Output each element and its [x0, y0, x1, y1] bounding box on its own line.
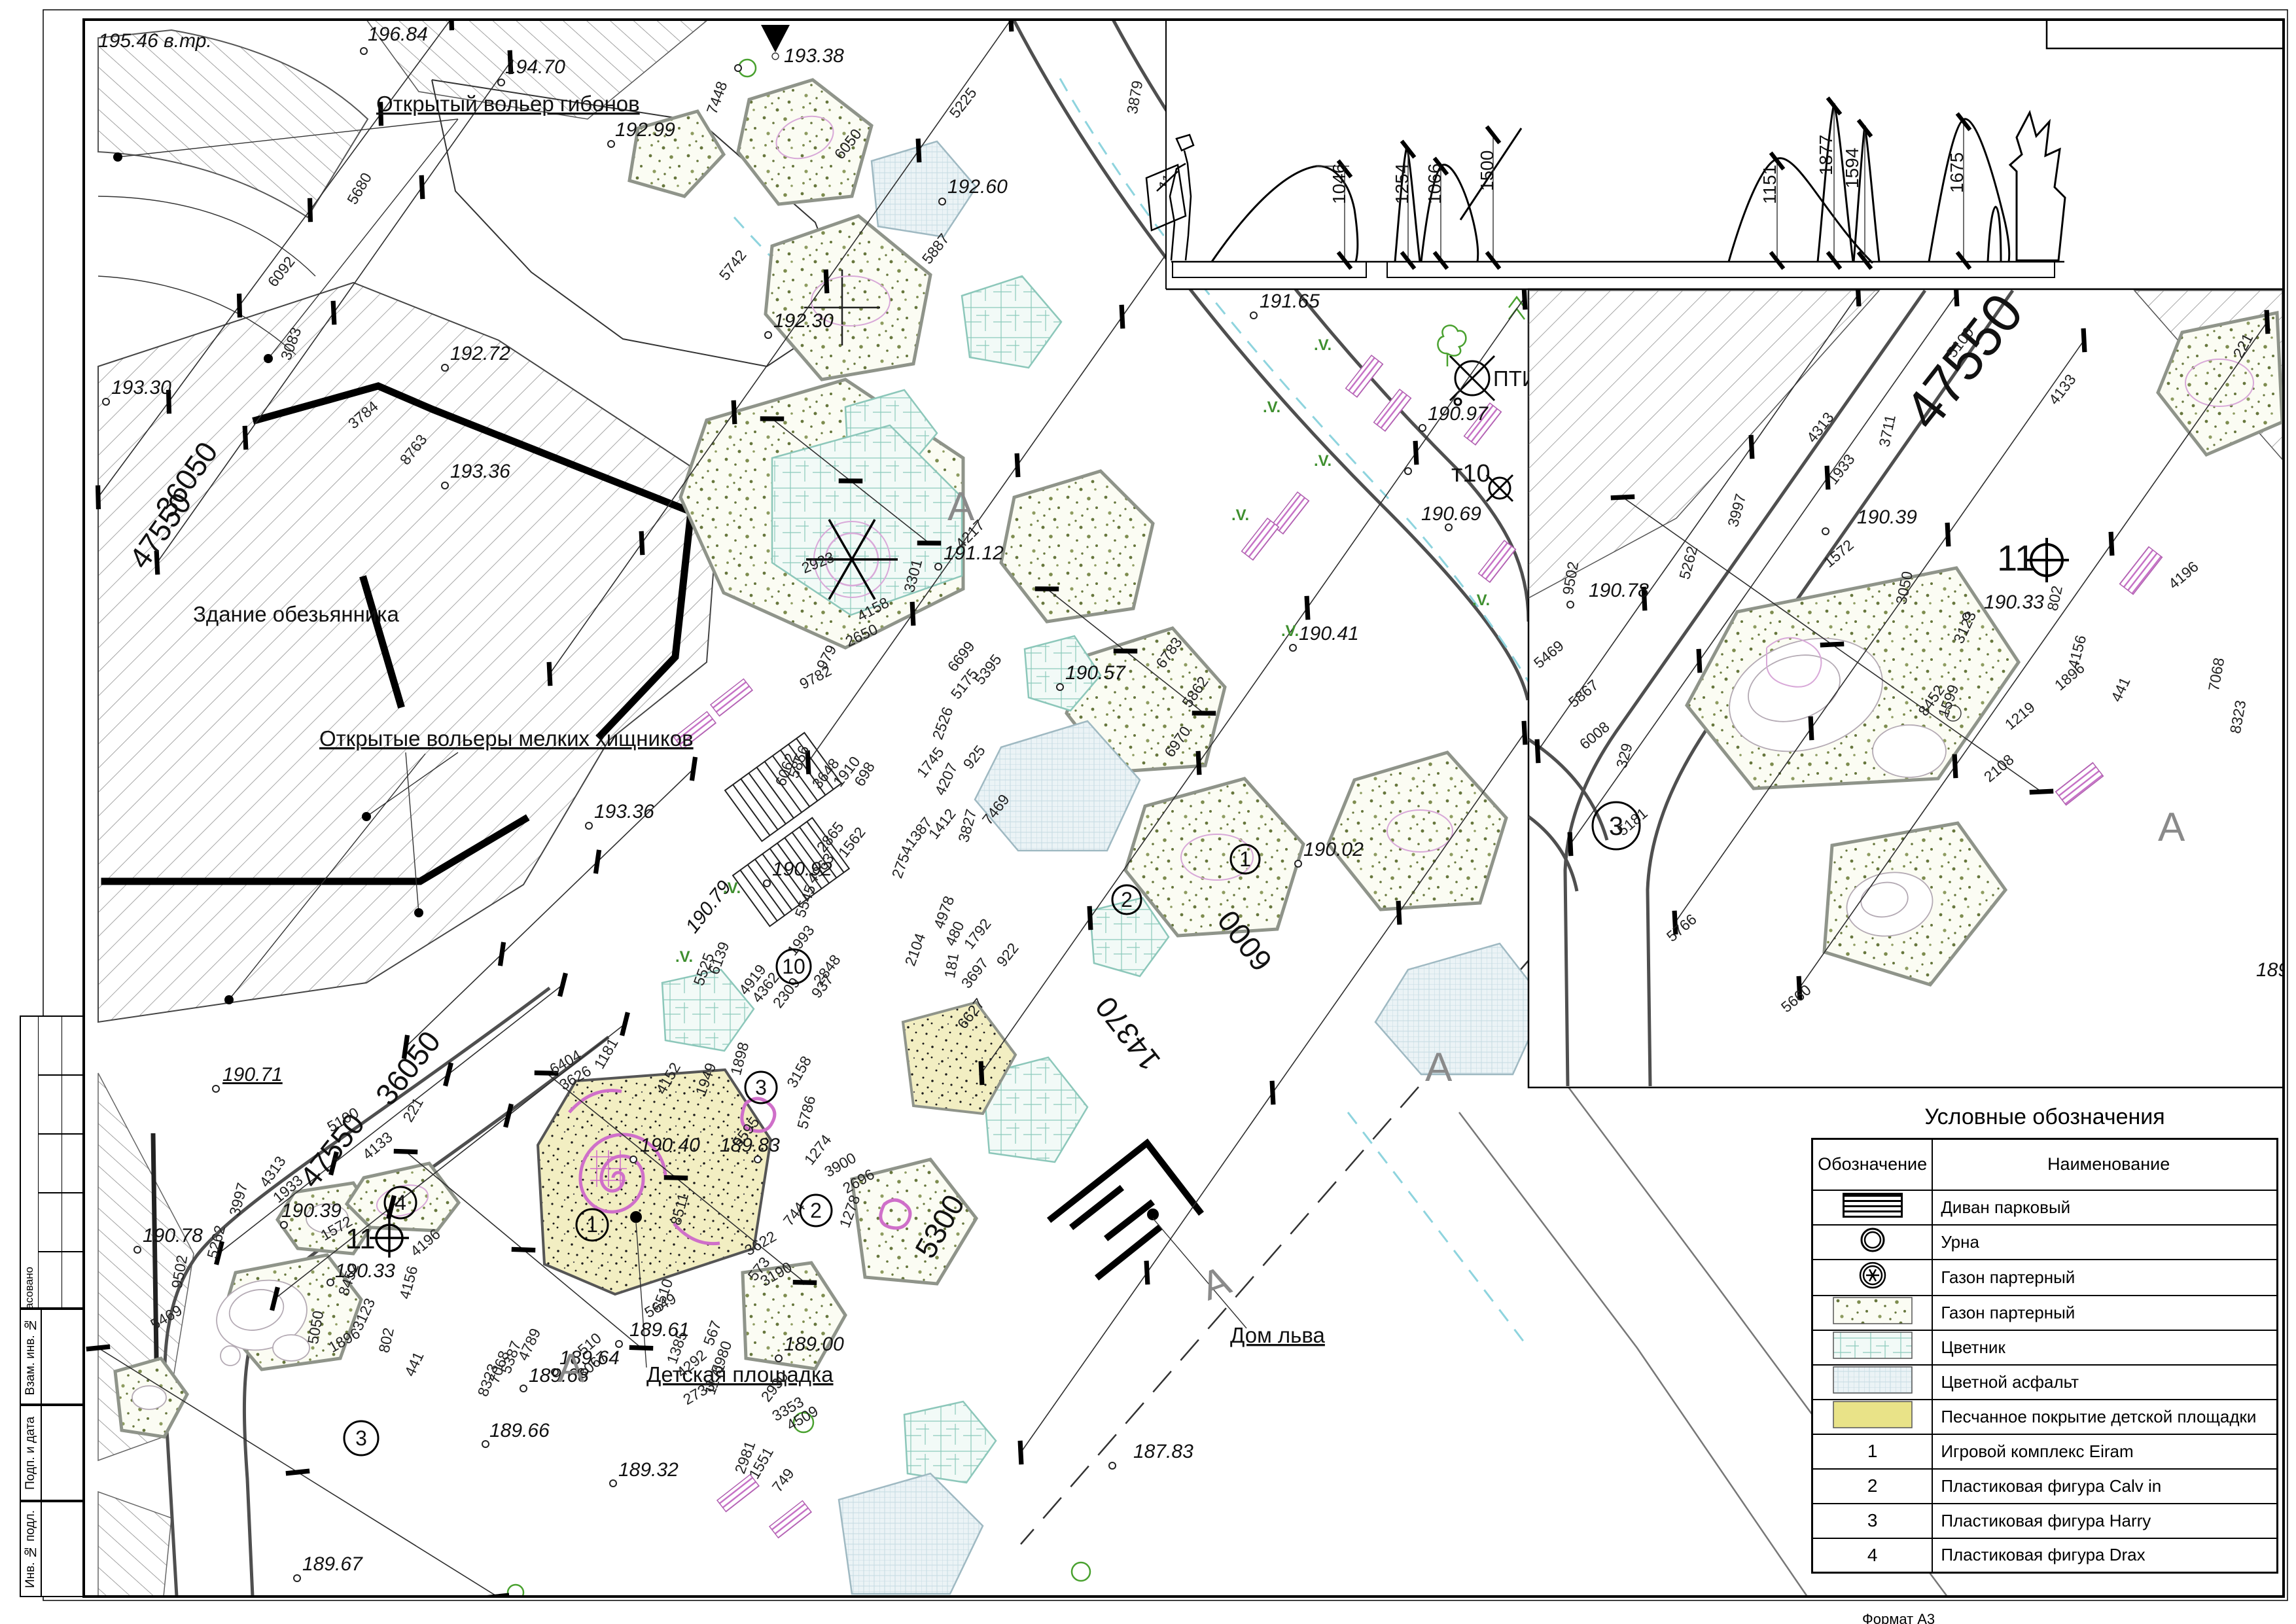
elevation-label: 190.33	[1984, 591, 2044, 613]
dim-label: 11	[1997, 537, 2035, 578]
dim-label: 6092	[264, 253, 298, 290]
dim-label: 3827	[955, 807, 980, 844]
elevation-label: 192.30	[773, 310, 834, 332]
dim-label: 36050	[369, 1025, 448, 1112]
legend-row-flower: Цветник	[1812, 1330, 2278, 1365]
survey-point	[361, 48, 367, 54]
legend-col-name: Наименование	[1932, 1139, 2277, 1190]
dim-label: 3997	[226, 1181, 251, 1218]
survey-marker-pti	[1450, 356, 1494, 405]
elevation-label: 190.39	[1857, 506, 1917, 528]
survey-point	[1250, 312, 1257, 319]
lawn-swatch	[1833, 1297, 1913, 1324]
survey-point	[1057, 684, 1063, 690]
survey-point	[765, 332, 771, 338]
survey-point	[134, 1246, 141, 1253]
dim-label: 3697	[958, 955, 992, 991]
circled-number-text: 3	[755, 1076, 767, 1099]
legend-row-1: 1 Игровой комплекс Eiram	[1812, 1434, 2278, 1469]
survey-point	[1405, 468, 1411, 474]
elevation-panel: 10461254106615001151187715941675	[1146, 20, 2284, 289]
survey-point	[1419, 425, 1426, 431]
legend-row-2: 2 Пластиковая фигура Calv in	[1812, 1469, 2278, 1504]
approval-table: Согласовано	[20, 1015, 84, 1309]
legend-row-3: 3 Пластиковая фигура Harry	[1812, 1504, 2278, 1538]
stamp-label: Инв. № подл.	[24, 1510, 38, 1588]
dim-label: т10	[1451, 460, 1491, 487]
elevation-label: 189.66	[489, 1420, 550, 1441]
elevation-label: 190.02	[1303, 839, 1364, 860]
survey-point	[1445, 524, 1452, 531]
sand-swatch	[1833, 1401, 1913, 1428]
dim-label: 6699	[944, 638, 978, 675]
dim-label: 5262	[203, 1224, 228, 1260]
elevation-label: 189.8	[2256, 959, 2296, 981]
elevation-label: 193.38	[784, 45, 844, 67]
elevation-label: 190.57	[1065, 662, 1126, 684]
dim-label: 922	[993, 940, 1022, 970]
elevation-label: 195.46 в.тр.	[98, 30, 212, 52]
feature-label: Здание обезьянника	[193, 602, 399, 626]
stamp-cell-vzam: Взам. инв. №	[20, 1309, 84, 1405]
survey-point	[586, 822, 592, 829]
dim-label: 1877	[1816, 135, 1836, 175]
legend-row-lawn: Газон партерный	[1812, 1296, 2278, 1330]
dim-label: 1066	[1424, 164, 1445, 204]
hatched-zone-corner	[98, 1492, 171, 1597]
survey-point	[498, 79, 504, 86]
dim-label: 181	[941, 951, 962, 979]
survey-point	[1822, 528, 1829, 535]
survey-point	[520, 1385, 527, 1392]
survey-point	[616, 1341, 622, 1347]
circled-number-text: 3	[355, 1426, 367, 1450]
survey-point	[935, 563, 942, 570]
survey-point	[442, 482, 448, 489]
survey-point	[1295, 860, 1301, 867]
dim-label: 7448	[703, 79, 731, 116]
dim-label: .V.	[1314, 452, 1332, 470]
legend-title: Условные обозначения	[1811, 1104, 2278, 1130]
dim-label: 2754	[889, 843, 916, 881]
elevation-label: 191.12	[944, 542, 1004, 564]
dim-label: 5225	[946, 84, 980, 121]
survey-point	[281, 1222, 287, 1228]
dim-label: .V.	[723, 879, 741, 897]
hatched-road-band	[98, 30, 368, 217]
survey-point	[939, 198, 945, 205]
elevation-label: 190.41	[1299, 623, 1359, 644]
dim-label: 1500	[1477, 150, 1497, 191]
dim-label: 3879	[1123, 79, 1146, 115]
dim-label: А	[1425, 1045, 1453, 1090]
dim-label: .V.	[1231, 506, 1249, 524]
legend-row-urn: Урна	[1812, 1225, 2278, 1260]
dim-label: .V.	[1314, 336, 1332, 354]
dim-label: 1898	[727, 1040, 752, 1077]
format-note: Формат А3	[1862, 1611, 1935, 1624]
legend-row-asphalt: Цветной асфальт	[1812, 1365, 2278, 1400]
survey-point	[1109, 1462, 1116, 1469]
urn-symbol	[1858, 1226, 1887, 1254]
elevation-label: 192.72	[450, 343, 510, 364]
circled-number-text: 10	[782, 955, 805, 978]
dim-label: 1792	[961, 915, 995, 952]
elevation-label: 192.60	[947, 176, 1008, 198]
dim-label: 5887	[919, 230, 953, 267]
legend-row-bench: Диван парковый	[1812, 1190, 2278, 1225]
survey-point	[1567, 601, 1574, 608]
fountain-symbol-legend	[1858, 1260, 1888, 1290]
elevation-label: 194.70	[505, 56, 565, 78]
circled-number-text: 2	[810, 1199, 822, 1222]
circled-number-text: 1	[586, 1213, 598, 1237]
legend-row-4: 4 Пластиковая фигура Drax	[1812, 1538, 2278, 1573]
elevation-label: 190.97	[1428, 403, 1489, 425]
elevation-label: 196.84	[368, 24, 428, 45]
dim-label: 1181	[590, 1035, 621, 1072]
elevation-label: 193.36	[450, 461, 510, 482]
dim-label: 1151	[1759, 165, 1780, 204]
elevation-label: 187.83	[1133, 1441, 1193, 1462]
legend-table: Обозначение Наименование Диван парковый …	[1811, 1138, 2278, 1574]
elevation-label: 191.65	[1260, 291, 1320, 312]
elevation-label: 192.99	[615, 119, 675, 141]
dim-label: 1254	[1392, 164, 1412, 204]
playground-sand	[538, 1070, 771, 1294]
dim-label: 441	[401, 1349, 427, 1379]
elevation-label: 193.30	[111, 377, 171, 398]
survey-point	[630, 1156, 637, 1163]
dim-label: 14370	[1089, 990, 1167, 1077]
stamp-cell-podp: Подп. и дата	[20, 1405, 84, 1501]
flower-swatch	[1833, 1332, 1913, 1359]
dim-label: 802	[375, 1326, 397, 1354]
dim-label: 9782	[797, 662, 834, 692]
legend-row-sand: Песчанное покрытие детской площадки	[1812, 1400, 2278, 1434]
circled-number-text: 3	[1609, 812, 1623, 841]
survey-point	[294, 1575, 300, 1581]
dim-label: 744	[780, 1199, 809, 1229]
approve-label: Согласовано	[23, 1267, 36, 1307]
elevation-label: 190.39	[281, 1200, 342, 1222]
benchmark-point	[772, 53, 779, 60]
survey-point	[775, 1355, 782, 1362]
legend: Условные обозначения Обозначение Наимено…	[1811, 1104, 2278, 1574]
survey-point	[608, 141, 614, 147]
asphalt-swatch	[1833, 1366, 1913, 1394]
feature-label: Открытые вольеры мелких хищников	[319, 726, 694, 750]
dim-label: 1675	[1947, 152, 1967, 193]
elevation-label: 190.69	[1421, 503, 1481, 525]
circled-number-text: 1	[1239, 847, 1251, 871]
dim-label: 2104	[902, 931, 929, 968]
elevation-label: 190.40	[640, 1135, 700, 1156]
drawing-sheet: Открытый вольер гибоновЗдание обезьянник…	[0, 0, 2296, 1624]
legend-row-fountain: Газон партерный	[1812, 1260, 2278, 1296]
elevation-label: 189.00	[784, 1333, 844, 1355]
elevation-label: 190.78	[1589, 580, 1649, 601]
circled-number-text: 2	[1121, 888, 1133, 911]
dim-label: 2526	[929, 705, 957, 742]
elevation-label: 190.78	[143, 1225, 203, 1246]
survey-point	[735, 65, 741, 71]
feature-label: Открытый вольер гибонов	[376, 92, 640, 116]
dim-label: .V.	[1281, 622, 1299, 640]
road-thin	[1459, 1112, 1807, 1597]
stamp-cell-inv: Инв. № подл.	[20, 1501, 84, 1597]
survey-point	[327, 1279, 334, 1286]
feature-label: Дом льва	[1230, 1323, 1326, 1347]
elevation-label: 189.32	[618, 1459, 679, 1481]
monkey-house-grounds	[98, 283, 720, 1022]
dim-label: 925	[960, 742, 989, 772]
dim-label: .V.	[1263, 398, 1280, 416]
dim-label: 5742	[716, 247, 750, 283]
dim-label: 749	[769, 1465, 798, 1495]
elevation-label: 193.36	[594, 801, 654, 822]
dim-label: 4156	[396, 1264, 421, 1301]
dim-label: А	[1195, 1258, 1237, 1309]
dim-label: 3158	[783, 1053, 815, 1090]
survey-point	[1290, 644, 1296, 651]
stamp-label: Взам. инв. №	[24, 1318, 38, 1395]
dim-label: 1046	[1329, 164, 1349, 204]
lion-house-walls	[1051, 1143, 1199, 1276]
survey-point	[103, 398, 109, 405]
detail-inset-panel: 47550190.3911190.33190.78189.8А510022141…	[1528, 282, 2296, 1087]
survey-point	[213, 1086, 219, 1092]
stamp-label: Подп. и дата	[24, 1417, 38, 1490]
survey-point	[482, 1441, 489, 1447]
dim-label: .V.	[1472, 591, 1490, 609]
survey-point	[764, 880, 770, 887]
dim-label: 1993	[784, 922, 818, 959]
dim-label: .V.	[675, 948, 693, 966]
dim-label: 1594	[1842, 148, 1862, 188]
survey-point	[442, 364, 448, 371]
survey-point	[610, 1480, 616, 1487]
elevation-label: 189.67	[302, 1553, 363, 1575]
dim-label: А	[2158, 805, 2185, 850]
bench-symbol	[1843, 1193, 1903, 1218]
elevation-label: 190.71	[222, 1064, 283, 1086]
dim-label: 5680	[344, 169, 375, 207]
dim-label: 5545	[792, 883, 819, 920]
legend-col-symbol: Обозначение	[1812, 1139, 1933, 1190]
survey-point	[754, 1156, 761, 1163]
survey-marker-t10	[1487, 475, 1513, 501]
dim-label: 5786	[794, 1094, 819, 1131]
circled-number-text: 4	[395, 1191, 406, 1214]
